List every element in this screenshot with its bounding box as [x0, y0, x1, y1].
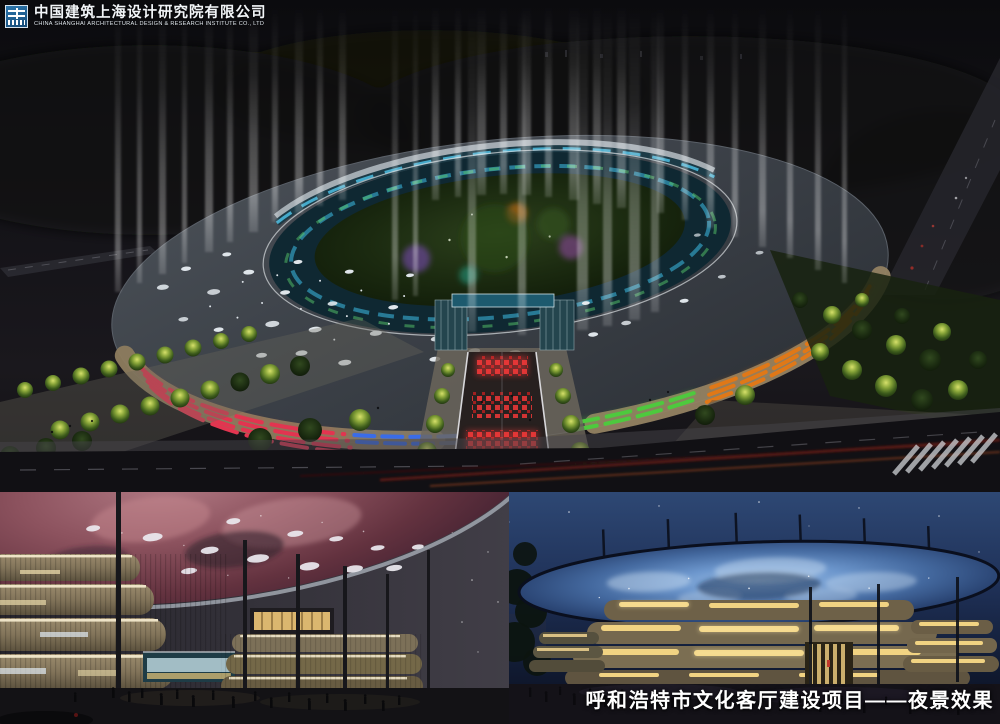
project-caption: 呼和浩特市文化客厅建设项目——夜景效果: [586, 684, 995, 713]
night-view-right-rendering: 呼和浩特市文化客厅建设项目——夜景效果: [509, 492, 1000, 724]
night-view-left-rendering: [0, 492, 509, 724]
sky-bridge: [452, 294, 554, 307]
aerial-night-rendering: 中国建筑上海设计研究院有限公司 CHINA SHANGHAI ARCHITECT…: [0, 0, 1000, 492]
galaxy-canopy-scene: [0, 492, 509, 724]
cscec-logo-icon: [5, 5, 28, 28]
aerial-scene: [0, 0, 1000, 492]
company-name-cn: 中国建筑上海设计研究院有限公司: [34, 5, 267, 21]
company-logo: 中国建筑上海设计研究院有限公司 CHINA SHANGHAI ARCHITECT…: [5, 5, 267, 28]
glass-entrance: [805, 642, 853, 686]
red-stair-accent: [827, 660, 830, 667]
presentation-board: 中国建筑上海设计研究院有限公司 CHINA SHANGHAI ARCHITECT…: [0, 0, 1000, 724]
left-annex: [529, 632, 605, 672]
company-name: 中国建筑上海设计研究院有限公司 CHINA SHANGHAI ARCHITECT…: [34, 5, 267, 28]
curved-building-right: [221, 634, 423, 696]
glass-atrium-right: [540, 300, 574, 350]
right-wing: [903, 620, 999, 672]
company-name-en: CHINA SHANGHAI ARCHITECTURAL DESIGN & RE…: [34, 21, 267, 28]
